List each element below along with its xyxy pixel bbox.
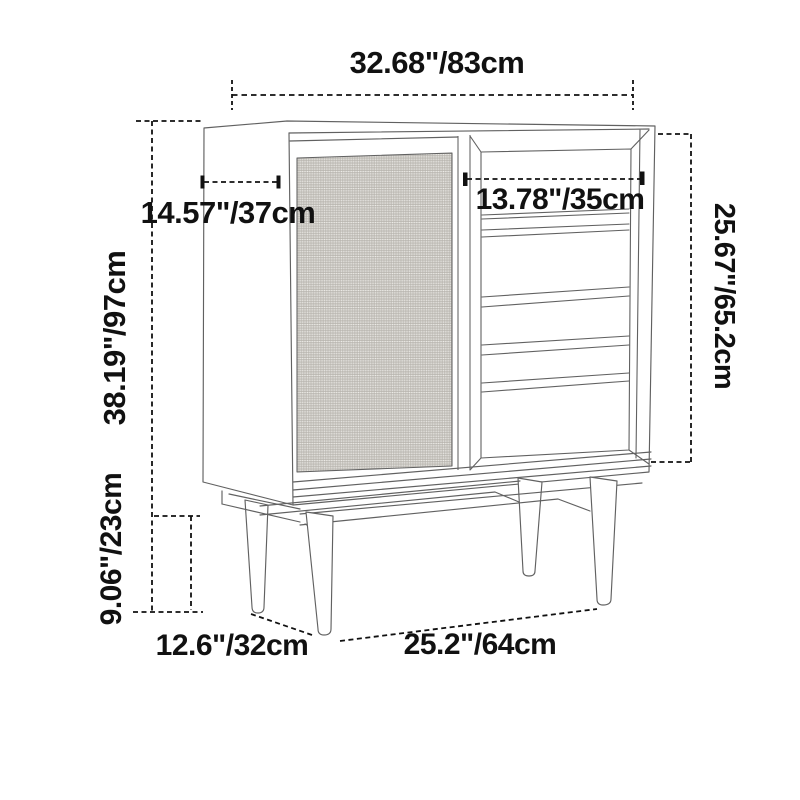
dim-overall-width-label: 32.68"/83cm	[287, 46, 587, 80]
cabinet-dimension-figure: 32.68"/83cm 14.57"/37cm 13.78"/35cm 38.1…	[0, 0, 800, 800]
dim-leg-height-label: 9.06"/23cm	[95, 459, 129, 639]
mesh-door	[297, 135, 470, 472]
dim-door-height-label: 25.67"/65.2cm	[705, 176, 739, 416]
dim-overall-height-label: 38.19"/97cm	[98, 228, 134, 448]
dim-side-depth-label: 14.57"/37cm	[118, 196, 338, 230]
dim-compartment-width-label: 13.78"/35cm	[460, 183, 660, 216]
dim-leg-depth-spacing-label: 12.6"/32cm	[132, 629, 332, 662]
dim-leg-width-spacing-label: 25.2"/64cm	[380, 628, 580, 661]
